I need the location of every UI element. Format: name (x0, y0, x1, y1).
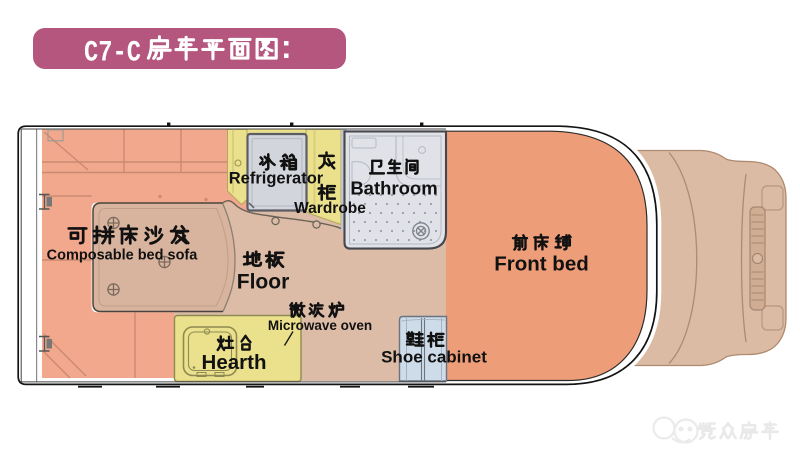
svg-text:Wardrobe: Wardrobe (294, 200, 366, 217)
svg-text:Composable bed sofa: Composable bed sofa (47, 248, 199, 264)
svg-text:Shoe cabinet: Shoe cabinet (381, 348, 487, 367)
svg-text:Microwave oven: Microwave oven (268, 318, 372, 333)
svg-text:Refrigerator: Refrigerator (229, 170, 324, 188)
svg-text:Bathroom: Bathroom (350, 178, 437, 199)
svg-text:Front bed: Front bed (494, 253, 589, 276)
svg-text:C7-C: C7-C (84, 37, 141, 71)
svg-text:Floor: Floor (237, 271, 290, 294)
svg-text:Hearth: Hearth (202, 351, 267, 374)
